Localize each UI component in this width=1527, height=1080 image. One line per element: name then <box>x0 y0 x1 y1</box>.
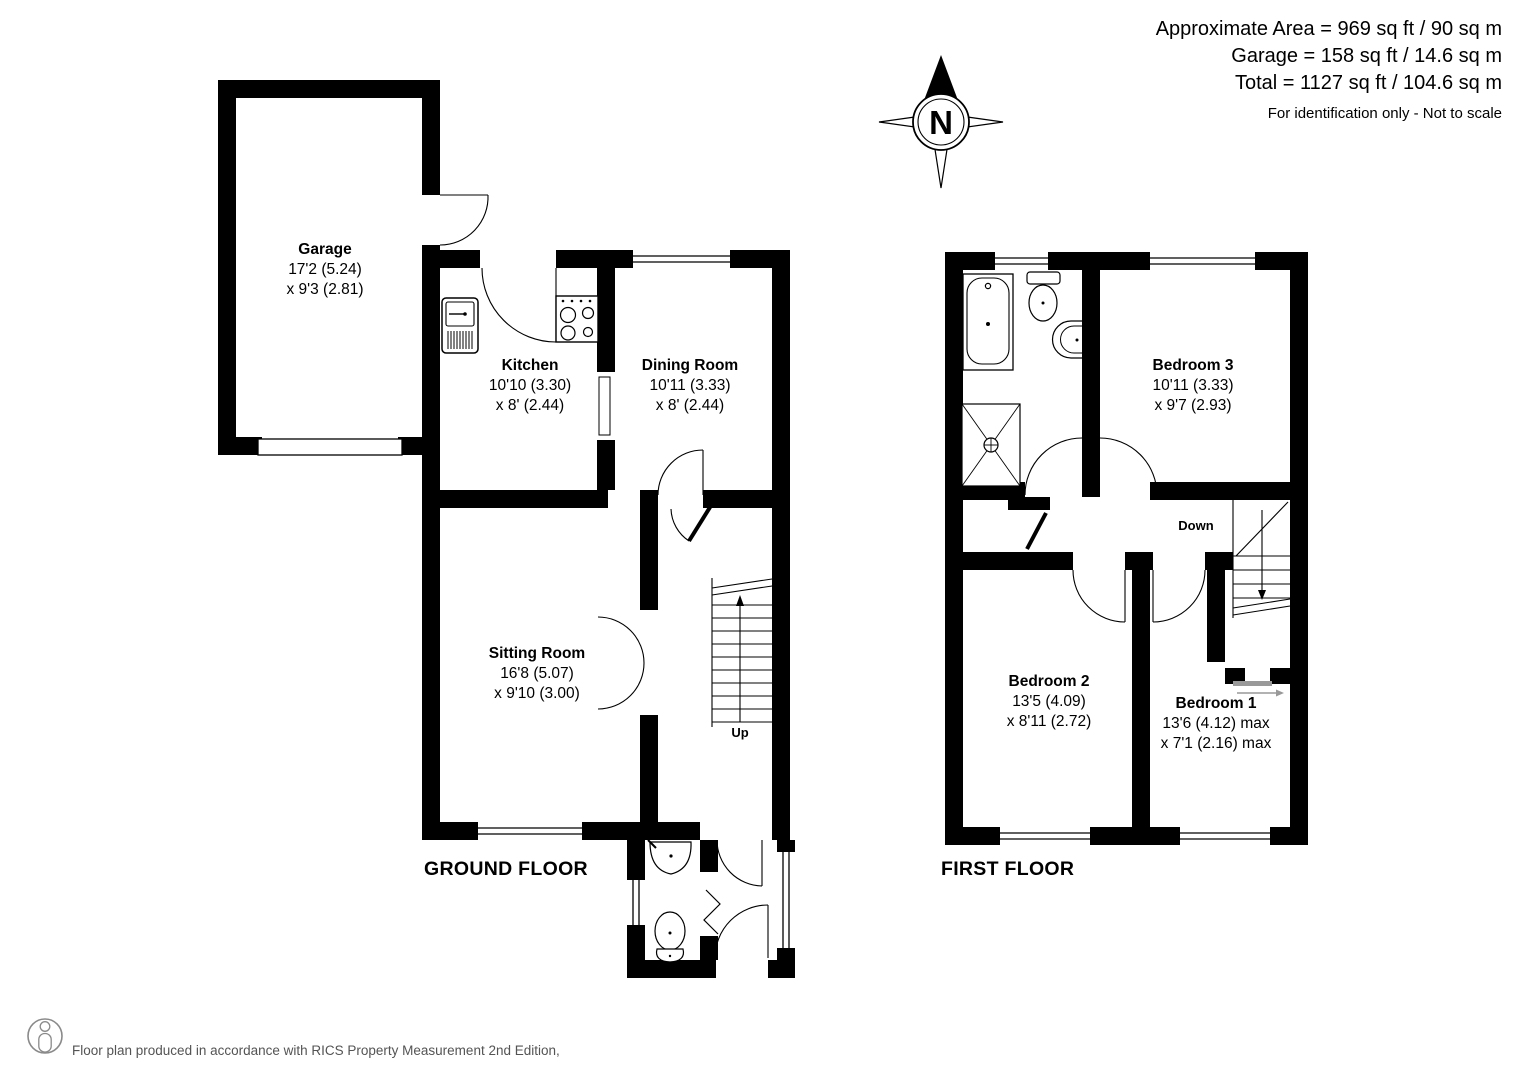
room-label-sitting-room: Sitting Room 16'8 (5.07) x 9'10 (3.00) <box>457 644 617 704</box>
room-label-bedroom1: Bedroom 1 13'6 (4.12) max x 7'1 (2.16) m… <box>1126 694 1306 754</box>
approximate-area-line: Approximate Area = 969 sq ft / 90 sq m <box>1156 16 1502 43</box>
room-label-kitchen: Kitchen 10'10 (3.30) x 8' (2.44) <box>450 356 610 416</box>
basin-icon <box>1053 321 1083 358</box>
footer-line1: Floor plan produced in accordance with R… <box>72 1042 688 1060</box>
stove-icon <box>556 296 598 342</box>
bath-icon <box>963 274 1013 370</box>
stairs-down-label: Down <box>1168 518 1224 533</box>
room-label-bedroom2: Bedroom 2 13'5 (4.09) x 8'11 (2.72) <box>969 672 1129 732</box>
compass-north-icon: N <box>879 55 1003 188</box>
kitchen-sink-icon <box>442 298 478 353</box>
first-floor-title: FIRST FLOOR <box>941 858 1074 881</box>
wc-break-line <box>704 890 720 934</box>
room-label-garage: Garage 17'2 (5.24) x 9'3 (2.81) <box>245 240 405 300</box>
person-icon <box>28 1019 62 1053</box>
room-label-bedroom3: Bedroom 3 10'11 (3.33) x 9'7 (2.93) <box>1113 356 1273 416</box>
floorplan-page: N <box>0 0 1527 1080</box>
stairs-up-label: Up <box>715 725 765 740</box>
toilet-icon <box>1027 272 1060 321</box>
wc-basin-icon <box>648 840 691 874</box>
room-label-dining-room: Dining Room 10'11 (3.33) x 8' (2.44) <box>610 356 770 416</box>
wc-toilet-icon <box>655 912 685 962</box>
scale-disclaimer: For identification only - Not to scale <box>1156 100 1502 127</box>
footer-disclaimer: Floor plan produced in accordance with R… <box>72 1006 688 1080</box>
garage-door <box>258 439 402 455</box>
ground-floor-title: GROUND FLOOR <box>424 858 588 881</box>
stairs-up <box>712 578 772 727</box>
floorplan-drawing: N <box>0 0 1527 1080</box>
area-summary: Approximate Area = 969 sq ft / 90 sq m G… <box>1156 16 1502 127</box>
garage-area-line: Garage = 158 sq ft / 14.6 sq m <box>1156 43 1502 70</box>
shower-icon <box>962 404 1020 486</box>
ground-floor-walls <box>218 80 795 978</box>
total-area-line: Total = 1127 sq ft / 104.6 sq m <box>1156 70 1502 97</box>
compass-n-letter: N <box>929 104 953 141</box>
stairs-down <box>1233 500 1290 618</box>
